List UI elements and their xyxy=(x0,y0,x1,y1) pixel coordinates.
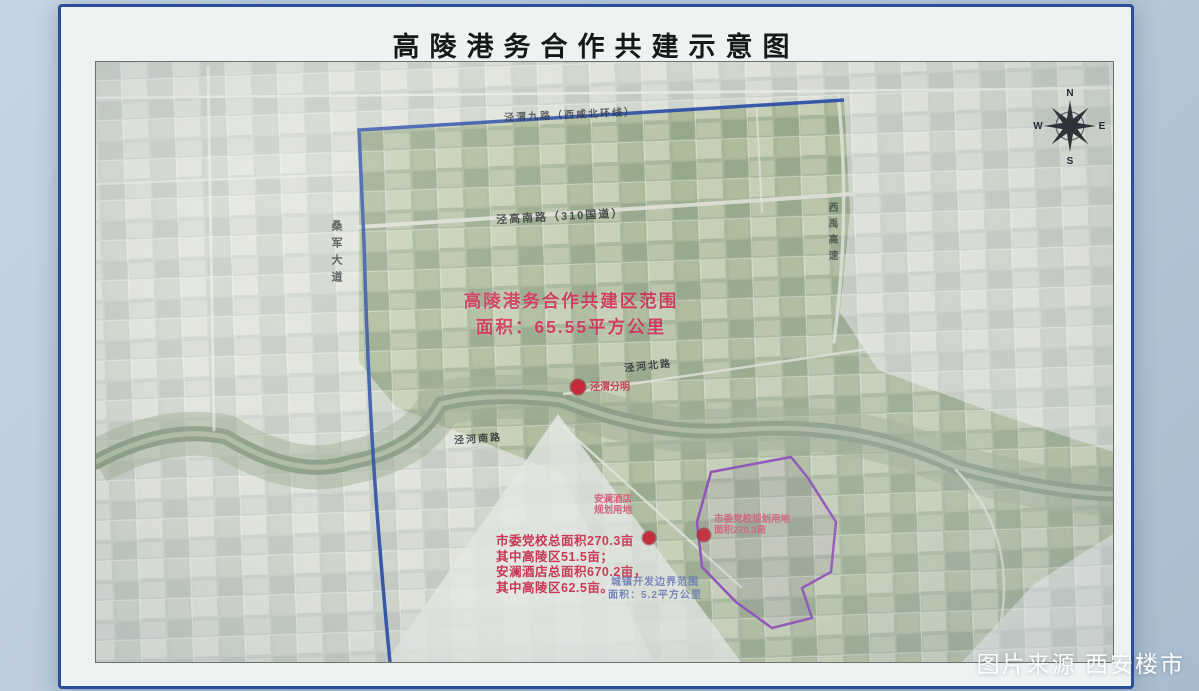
photo-of-planning-board: 高陵港务合作共建示意图 xyxy=(0,0,1199,691)
compass-south-label: S xyxy=(1067,156,1074,166)
compass-west-label: W xyxy=(1033,121,1043,132)
stats-line3: 安澜酒店总面积670.2亩， xyxy=(496,565,647,581)
compass-rose: N E S W xyxy=(1031,86,1109,166)
label-party-school-line1: 市委党校规划用地 xyxy=(714,514,790,525)
zone-callout-line2: 面积：65.55平方公里 xyxy=(421,314,721,340)
watermark-credit: 图片来源 西安楼市 xyxy=(977,645,1185,679)
zone-callout: 高陵港务合作共建区范围 面积：65.55平方公里 xyxy=(421,288,721,340)
map-poster: 高陵港务合作共建示意图 xyxy=(58,4,1134,689)
compass-east-label: E xyxy=(1099,121,1106,132)
label-xiyu-expressway: 西禹高速 xyxy=(824,202,839,266)
label-jingwei-confluence: 泾渭分明 xyxy=(590,382,630,393)
satellite-map: 泾渭九路（西咸北环线） 泾高南路（310国道） 桑军大道 西禹高速 泾河北路 泾… xyxy=(95,61,1114,663)
label-anlan-hotel-line2: 规划用地 xyxy=(594,505,632,516)
location-dot-party-school xyxy=(698,529,710,541)
stats-line4: 其中高陵区62.5亩。 xyxy=(496,581,647,597)
compass-north-label: N xyxy=(1066,88,1073,99)
area-statistics-note: 市委党校总面积270.3亩 其中高陵区51.5亩； 安澜酒店总面积670.2亩，… xyxy=(496,534,647,596)
zone-callout-line1: 高陵港务合作共建区范围 xyxy=(421,288,721,314)
label-sangjun-avenue: 桑军大道 xyxy=(328,220,344,288)
compass-star-icon xyxy=(1044,100,1096,152)
page-title: 高陵港务合作共建示意图 xyxy=(61,25,1131,64)
stats-line1: 市委党校总面积270.3亩 xyxy=(496,534,647,550)
label-party-school-line2: 面积270.3亩 xyxy=(714,525,790,536)
label-anlan-hotel-line1: 安澜酒店 xyxy=(594,494,632,505)
location-dot-jingwei xyxy=(571,380,585,394)
stats-line2: 其中高陵区51.5亩； xyxy=(496,550,647,566)
